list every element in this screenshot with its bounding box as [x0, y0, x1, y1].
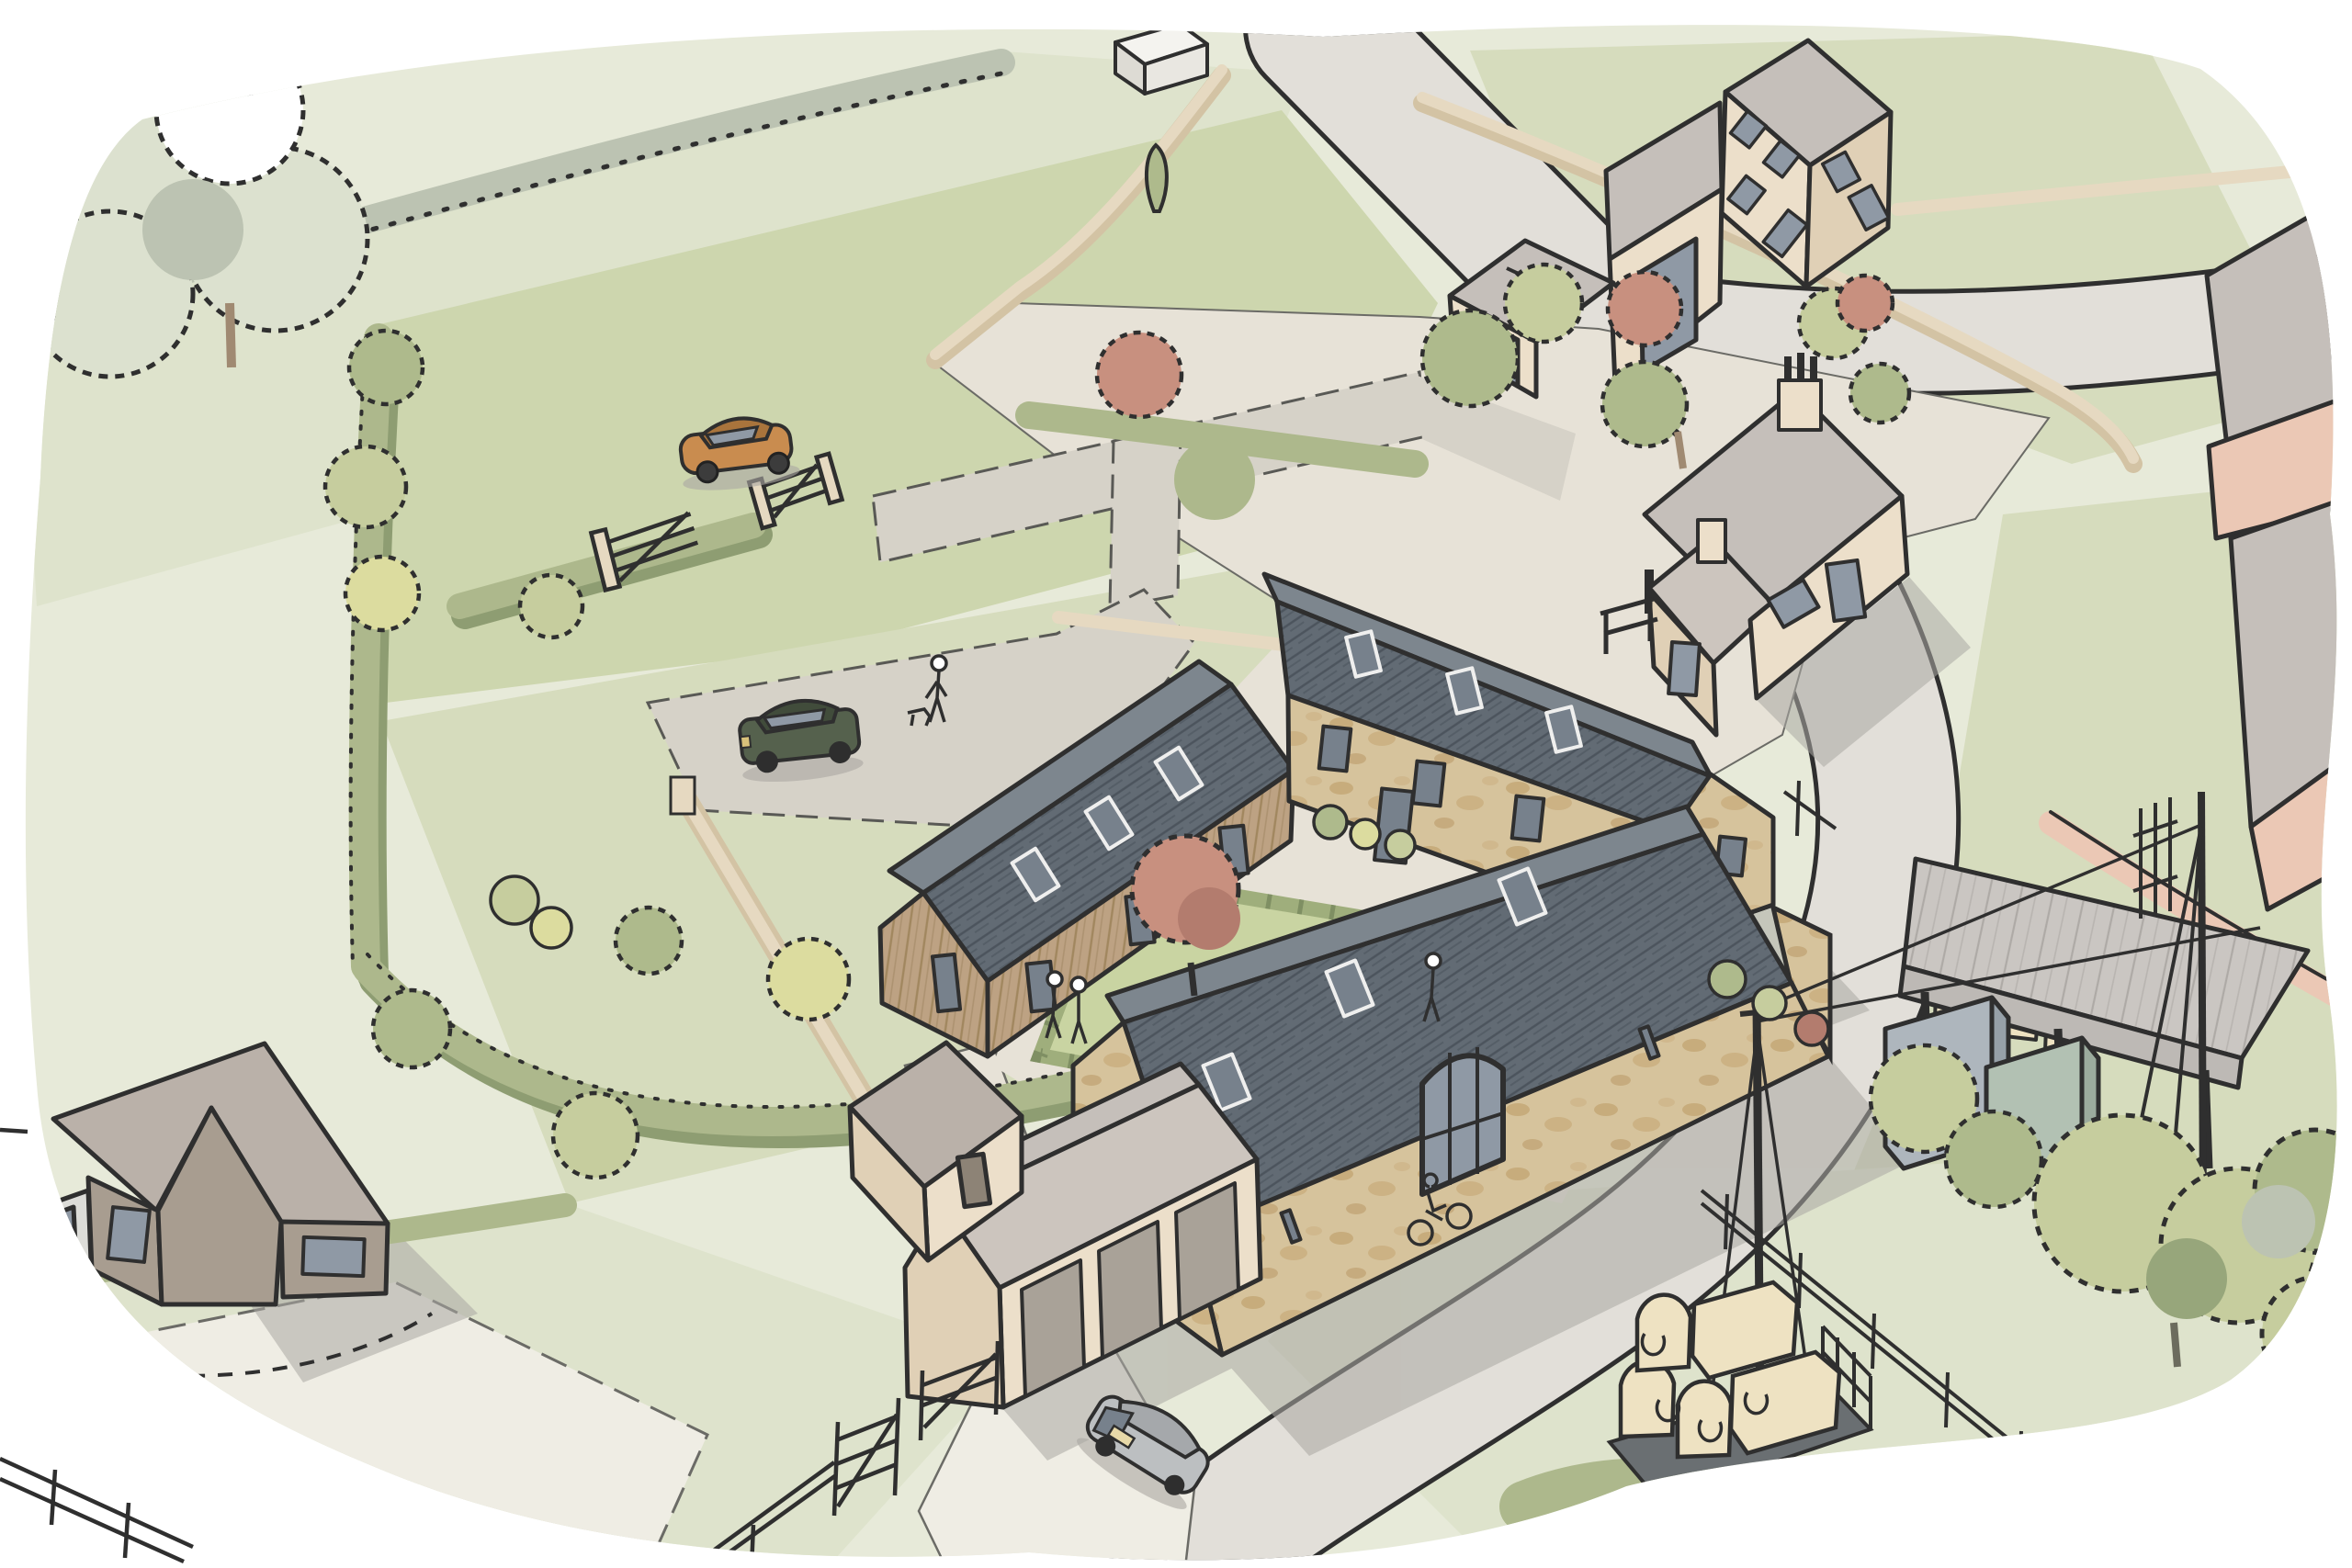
illustration-canvas	[0, 0, 2352, 1568]
scene	[0, 0, 2352, 1568]
conifer	[1147, 145, 1167, 211]
hedge-oval	[1174, 439, 1255, 520]
iron-gate	[2133, 797, 2177, 919]
outbuilding-door	[957, 1154, 989, 1206]
site-illustration	[0, 0, 2352, 1568]
